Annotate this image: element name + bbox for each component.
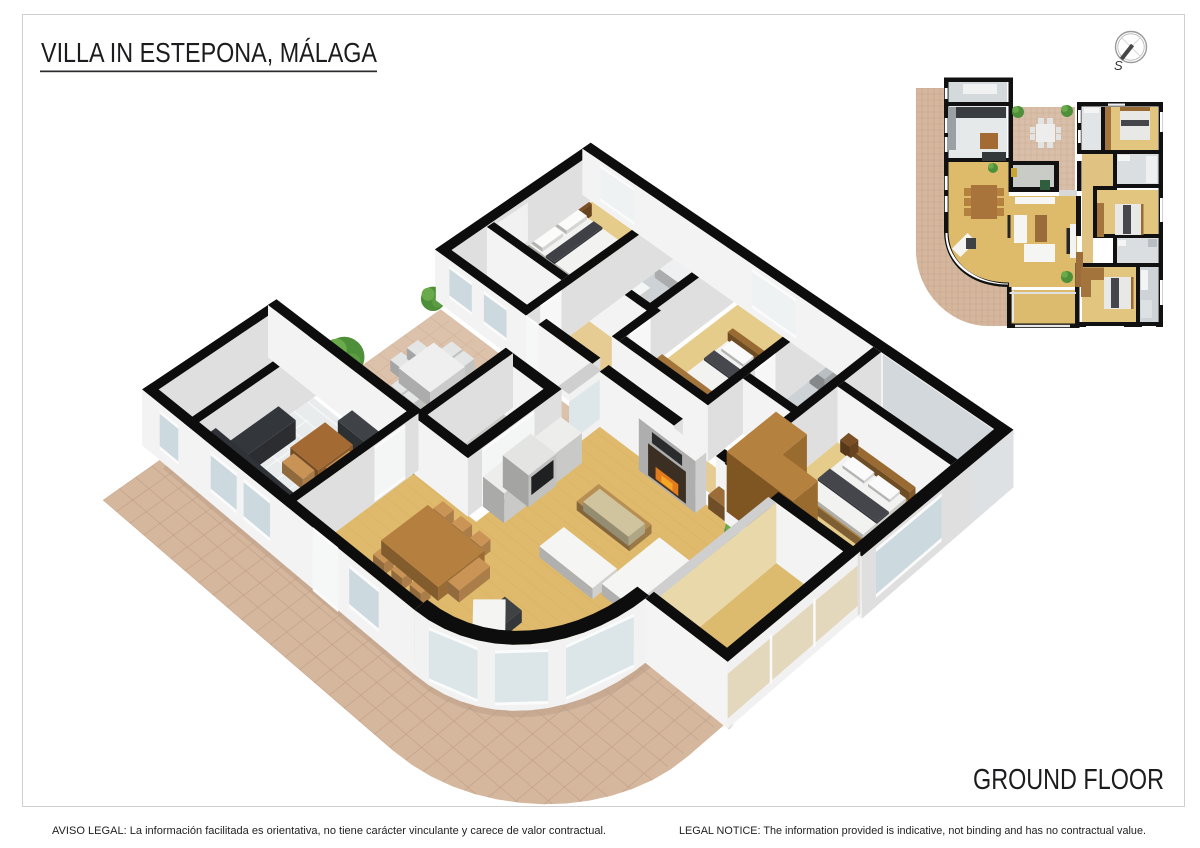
svg-text:S: S — [1114, 58, 1123, 73]
svg-text:VILLA IN ESTEPONA, MÁLAGA: VILLA IN ESTEPONA, MÁLAGA — [41, 37, 377, 68]
svg-text:LEGAL NOTICE: The information: LEGAL NOTICE: The information provided i… — [679, 825, 1146, 837]
svg-text:AVISO LEGAL: La información fa: AVISO LEGAL: La información facilitada e… — [52, 825, 606, 837]
svg-text:GROUND FLOOR: GROUND FLOOR — [973, 764, 1164, 796]
